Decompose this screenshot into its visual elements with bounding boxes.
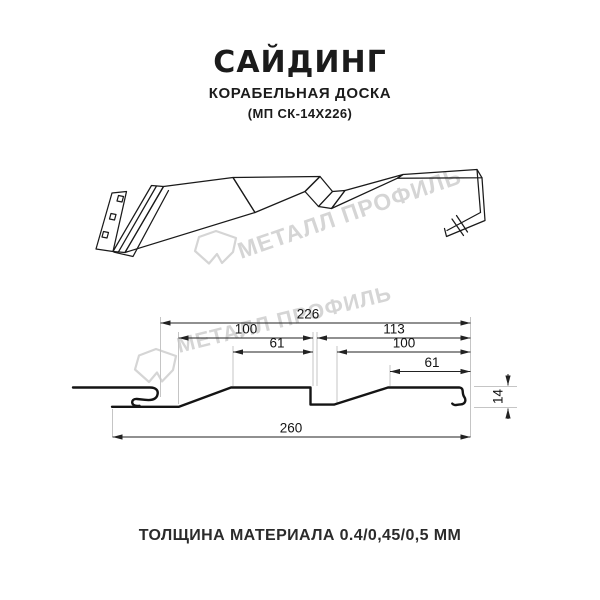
thickness-note: ТОЛЩИНА МАТЕРИАЛА 0.4/0,45/0,5 ММ: [0, 527, 600, 545]
dim-label-260: 260: [280, 421, 303, 436]
cross-section-profile: [73, 388, 465, 407]
dim-label-100-right: 100: [393, 336, 416, 351]
nail-hole: [117, 196, 124, 203]
step-face: [305, 177, 333, 207]
dim-label-61-right: 61: [424, 355, 439, 370]
watermark-lower: МЕТАЛЛ ПРОФИЛЬ: [135, 281, 394, 382]
dim-label-14: 14: [491, 389, 506, 405]
dim-label-100-left: 100: [235, 322, 258, 337]
panel-profile-line: [112, 388, 465, 407]
lock-fold-line: [119, 186, 157, 252]
product-drawing-page: САЙДИНГ КОРАБЕЛЬНАЯ ДОСКА (МП СК-14Х226)…: [0, 0, 600, 600]
dimension-lines: [113, 323, 509, 437]
brand-logo-icon: [135, 349, 176, 382]
brand-logo-icon: [195, 231, 236, 264]
lap-edge-and-lock-hook: [73, 388, 158, 406]
technical-drawing-canvas: МЕТАЛЛ ПРОФИЛЬ МЕТАЛЛ ПРОФИЛЬ: [0, 0, 600, 600]
nail-hole: [110, 214, 117, 221]
dim-label-113: 113: [383, 322, 405, 337]
extension-lines: [113, 317, 518, 437]
nail-hole: [102, 232, 109, 239]
dim-label-226: 226: [297, 307, 320, 322]
dim-label-61-left: 61: [269, 336, 284, 351]
